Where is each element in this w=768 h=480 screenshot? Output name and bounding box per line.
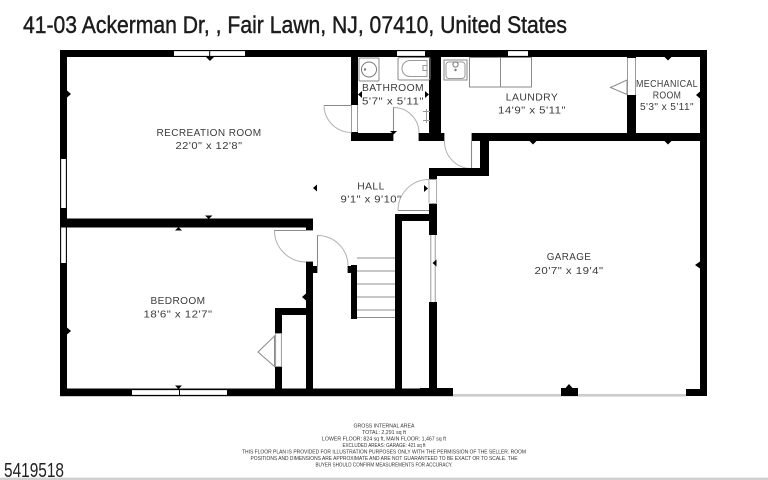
svg-text:9'1" x 9'10": 9'1" x 9'10" xyxy=(341,195,402,206)
svg-text:BEDROOM: BEDROOM xyxy=(151,296,206,307)
svg-text:14'9" x 5'11": 14'9" x 5'11" xyxy=(498,106,566,117)
svg-text:THIS FLOOR PLAN IS PROVIDED FO: THIS FLOOR PLAN IS PROVIDED FOR ILLUSTRA… xyxy=(242,450,526,456)
svg-text:ROOM: ROOM xyxy=(653,91,682,102)
svg-text:20'7" x 19'4": 20'7" x 19'4" xyxy=(535,266,604,277)
svg-text:BATHROOM: BATHROOM xyxy=(362,83,424,94)
svg-text:EXCLUDED AREAS: GARAGE: 421 sq: EXCLUDED AREAS: GARAGE: 421 sq ft xyxy=(343,443,426,449)
svg-text:LOWER FLOOR: 824 sq ft, MAIN F: LOWER FLOOR: 824 sq ft, MAIN FLOOR: 1,46… xyxy=(322,437,446,443)
svg-text:GARAGE: GARAGE xyxy=(547,252,592,263)
svg-text:22'0" x 12'8": 22'0" x 12'8" xyxy=(176,141,243,152)
svg-text:LAUNDRY: LAUNDRY xyxy=(506,93,559,104)
svg-text:POSITIONS AND DIMENSIONS ARE A: POSITIONS AND DIMENSIONS ARE APPROXIMATE… xyxy=(251,456,518,462)
svg-text:GROSS INTERNAL AREA: GROSS INTERNAL AREA xyxy=(354,424,415,430)
svg-text:5419518: 5419518 xyxy=(4,459,64,480)
svg-text:RECREATION ROOM: RECREATION ROOM xyxy=(157,128,262,139)
svg-text:41-03 Ackerman Dr, , Fair Lawn: 41-03 Ackerman Dr, , Fair Lawn, NJ, 0741… xyxy=(23,12,567,39)
svg-text:MECHANICAL: MECHANICAL xyxy=(636,79,698,90)
svg-text:TOTAL: 2,291 sq ft: TOTAL: 2,291 sq ft xyxy=(362,430,406,436)
svg-text:BUYER SHOULD CONFIRM MEASUREME: BUYER SHOULD CONFIRM MEASUREMENTS FOR AC… xyxy=(316,463,453,469)
svg-text:5'7" x 5'11": 5'7" x 5'11" xyxy=(362,97,424,108)
svg-text:5'3" x 5'11": 5'3" x 5'11" xyxy=(640,102,694,113)
svg-text:18'6" x 12'7": 18'6" x 12'7" xyxy=(144,310,213,321)
svg-text:HALL: HALL xyxy=(357,182,385,193)
